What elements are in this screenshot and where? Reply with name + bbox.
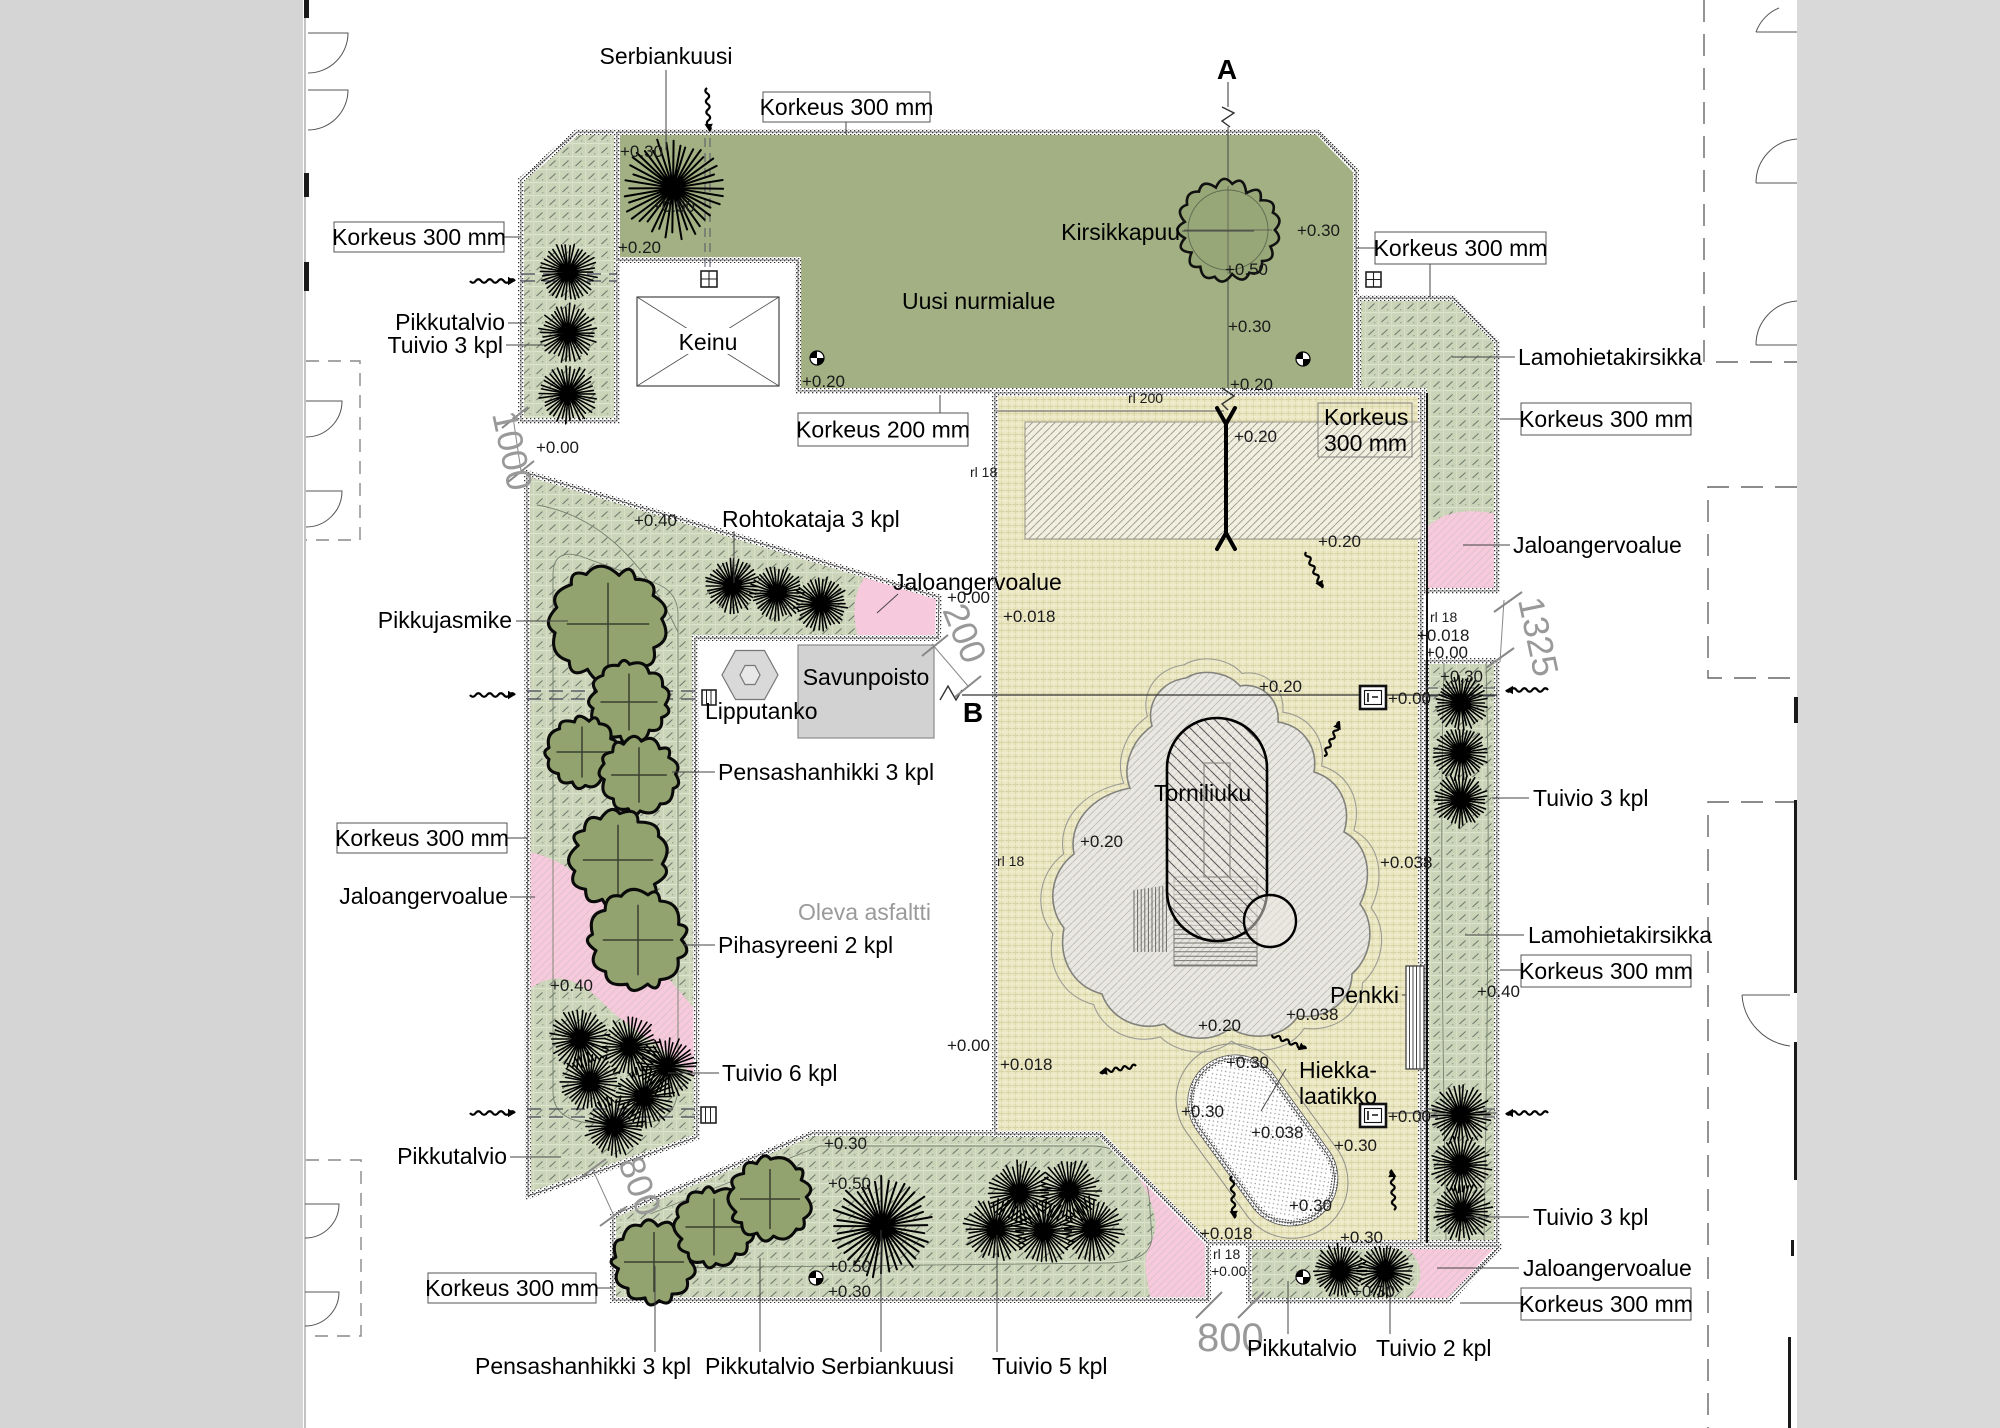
- svg-text:+0.00: +0.00: [1425, 643, 1468, 662]
- svg-text:Hiekka-: Hiekka-: [1299, 1057, 1377, 1083]
- svg-text:+0.20: +0.20: [1234, 427, 1277, 446]
- svg-text:Korkeus: Korkeus: [1324, 404, 1408, 430]
- svg-text:+0.00: +0.00: [1388, 1107, 1431, 1126]
- svg-text:rl 18: rl 18: [1213, 1246, 1240, 1262]
- svg-text:+0.00: +0.00: [1388, 689, 1431, 708]
- svg-text:Pikkutalvio: Pikkutalvio: [397, 1143, 507, 1169]
- svg-text:+0.30: +0.30: [1440, 667, 1483, 686]
- svg-text:Pikkutalvio: Pikkutalvio: [705, 1353, 815, 1379]
- svg-text:+0.30: +0.30: [1181, 1102, 1224, 1121]
- svg-text:rl 18: rl 18: [1430, 609, 1457, 625]
- svg-text:+0.018: +0.018: [1003, 607, 1055, 626]
- svg-text:+0.00: +0.00: [1211, 1263, 1247, 1279]
- svg-text:Tuivio 2 kpl: Tuivio 2 kpl: [1376, 1335, 1491, 1361]
- svg-text:Serbiankuusi: Serbiankuusi: [600, 43, 733, 69]
- svg-text:A: A: [1217, 54, 1237, 85]
- svg-text:+0.00: +0.00: [947, 588, 990, 607]
- svg-text:Korkeus 300 mm: Korkeus 300 mm: [335, 825, 509, 851]
- svg-text:Pikkutalvio: Pikkutalvio: [1247, 1335, 1357, 1361]
- svg-text:+0.40: +0.40: [1477, 982, 1520, 1001]
- svg-text:Pensashanhikki 3 kpl: Pensashanhikki 3 kpl: [475, 1353, 691, 1379]
- svg-text:+0.018: +0.018: [1200, 1224, 1252, 1243]
- svg-text:+0.50: +0.50: [652, 197, 695, 216]
- svg-text:Tuivio 3 kpl: Tuivio 3 kpl: [1533, 1204, 1648, 1230]
- svg-text:Pihasyreeni 2 kpl: Pihasyreeni 2 kpl: [718, 932, 893, 958]
- svg-text:Korkeus 300 mm: Korkeus 300 mm: [760, 94, 934, 120]
- svg-text:Jaloangervoalue: Jaloangervoalue: [339, 883, 508, 909]
- svg-text:+0.30: +0.30: [1228, 317, 1271, 336]
- svg-text:Rohtokataja 3 kpl: Rohtokataja 3 kpl: [722, 506, 900, 532]
- svg-text:Korkeus 300 mm: Korkeus 300 mm: [332, 224, 506, 250]
- svg-text:+0.30: +0.30: [1334, 1136, 1377, 1155]
- svg-text:Lipputanko: Lipputanko: [705, 698, 818, 724]
- svg-text:laatikko: laatikko: [1299, 1083, 1377, 1109]
- svg-text:rl 200: rl 200: [1128, 390, 1163, 406]
- svg-text:+0.20: +0.20: [802, 372, 845, 391]
- svg-text:Tuivio 3 kpl: Tuivio 3 kpl: [388, 332, 503, 358]
- svg-text:rl 18: rl 18: [997, 853, 1024, 869]
- svg-text:B: B: [963, 697, 983, 728]
- svg-text:+0.30: +0.30: [828, 1282, 871, 1301]
- svg-text:Uusi nurmialue: Uusi nurmialue: [902, 288, 1055, 314]
- svg-text:Serbiankuusi: Serbiankuusi: [821, 1353, 954, 1379]
- svg-text:Pensashanhikki 3 kpl: Pensashanhikki 3 kpl: [718, 759, 934, 785]
- svg-text:+0.038: +0.038: [1251, 1123, 1303, 1142]
- svg-text:+0.00: +0.00: [536, 438, 579, 457]
- svg-text:+0.50: +0.50: [1225, 260, 1268, 279]
- svg-text:Jaloangervoalue: Jaloangervoalue: [1523, 1255, 1692, 1281]
- svg-text:Oleva asfaltti: Oleva asfaltti: [798, 899, 931, 925]
- svg-text:+0.038: +0.038: [1286, 1005, 1338, 1024]
- svg-text:Tuivio 6 kpl: Tuivio 6 kpl: [722, 1060, 837, 1086]
- svg-text:+0.018: +0.018: [1000, 1055, 1052, 1074]
- svg-text:+0.30: +0.30: [824, 1134, 867, 1153]
- svg-text:Lamohietakirsikka: Lamohietakirsikka: [1518, 344, 1702, 370]
- svg-text:Korkeus 300 mm: Korkeus 300 mm: [1519, 958, 1693, 984]
- svg-text:+0.30: +0.30: [1352, 1282, 1395, 1301]
- svg-text:+0.30: +0.30: [1226, 1053, 1269, 1072]
- svg-text:Korkeus 200 mm: Korkeus 200 mm: [796, 417, 970, 443]
- svg-text:Pikkujasmike: Pikkujasmike: [378, 607, 512, 633]
- svg-text:+0.50: +0.50: [828, 1174, 871, 1193]
- svg-text:+0.40: +0.40: [550, 976, 593, 995]
- svg-text:+0.30: +0.30: [1340, 1228, 1383, 1247]
- svg-text:Jaloangervoalue: Jaloangervoalue: [1513, 532, 1682, 558]
- svg-text:Korkeus 300 mm: Korkeus 300 mm: [425, 1275, 599, 1301]
- svg-text:Kirsikkapuu: Kirsikkapuu: [1061, 219, 1180, 245]
- svg-text:+0.30: +0.30: [620, 142, 663, 161]
- svg-text:+0.038: +0.038: [1380, 853, 1432, 872]
- svg-text:Korkeus 300 mm: Korkeus 300 mm: [1374, 235, 1548, 261]
- svg-text:Keinu: Keinu: [679, 329, 738, 355]
- svg-text:Tuivio 5 kpl: Tuivio 5 kpl: [992, 1353, 1107, 1379]
- svg-text:+0.20: +0.20: [1230, 375, 1273, 394]
- svg-text:+0.50: +0.50: [828, 1257, 871, 1276]
- svg-text:Korkeus 300 mm: Korkeus 300 mm: [1519, 406, 1693, 432]
- svg-text:Lamohietakirsikka: Lamohietakirsikka: [1528, 922, 1712, 948]
- svg-text:Savunpoisto: Savunpoisto: [803, 664, 930, 690]
- svg-text:+0.20: +0.20: [1080, 832, 1123, 851]
- svg-text:300 mm: 300 mm: [1324, 430, 1407, 456]
- svg-text:+0.20: +0.20: [618, 238, 661, 257]
- svg-text:+0.20: +0.20: [1198, 1016, 1241, 1035]
- svg-text:+0.00: +0.00: [947, 1036, 990, 1055]
- svg-text:Tuivio 3 kpl: Tuivio 3 kpl: [1533, 785, 1648, 811]
- svg-text:+0.40: +0.40: [634, 511, 677, 530]
- svg-text:rl 18: rl 18: [970, 464, 997, 480]
- svg-text:+0.20: +0.20: [1259, 677, 1302, 696]
- svg-text:+0.20: +0.20: [1318, 532, 1361, 551]
- svg-text:Torniliuku: Torniliuku: [1154, 780, 1251, 806]
- svg-text:+0.30: +0.30: [1289, 1196, 1332, 1215]
- svg-text:+0.30: +0.30: [1297, 221, 1340, 240]
- svg-text:Penkki: Penkki: [1330, 982, 1399, 1008]
- svg-text:Korkeus 300 mm: Korkeus 300 mm: [1519, 1291, 1693, 1317]
